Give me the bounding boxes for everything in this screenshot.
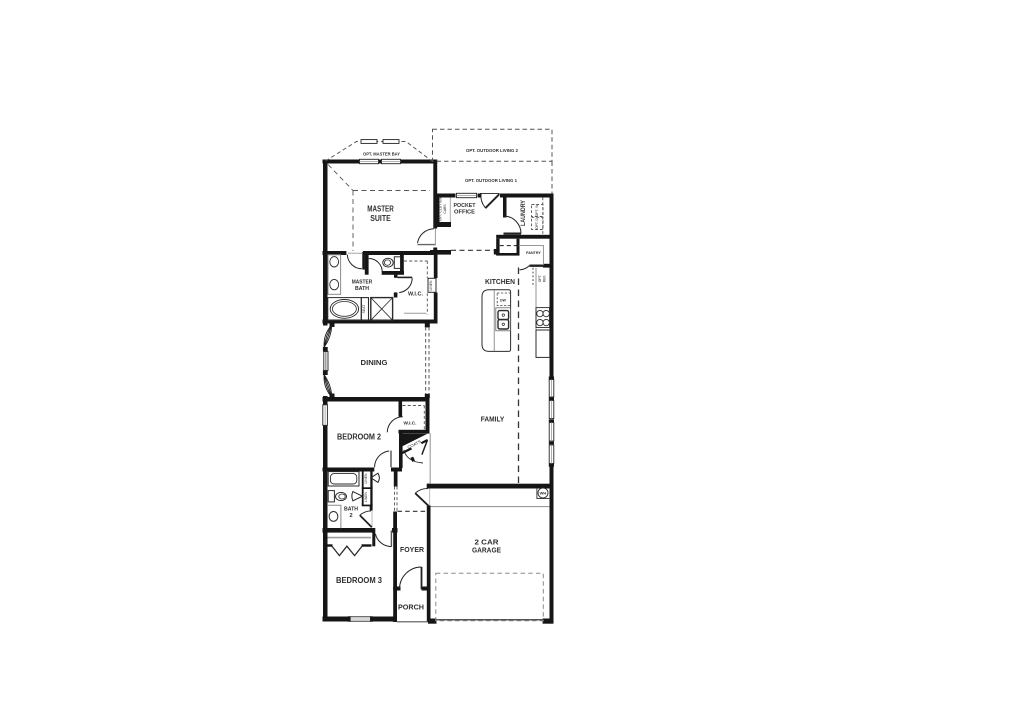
svg-text:OFFICE: OFFICE — [454, 210, 475, 216]
svg-text:LINEN: LINEN — [364, 491, 368, 502]
svg-text:W.I.C.: W.I.C. — [408, 292, 423, 298]
svg-text:MASTER: MASTER — [352, 280, 373, 286]
svg-text:OPT. MASTER BAY: OPT. MASTER BAY — [363, 152, 400, 157]
svg-text:MASTER: MASTER — [367, 205, 394, 214]
svg-text:FAMILY: FAMILY — [481, 415, 505, 424]
svg-text:GARAGE: GARAGE — [472, 546, 501, 555]
svg-text:KITCHEN: KITCHEN — [485, 277, 515, 286]
svg-text:BATH: BATH — [344, 507, 358, 513]
svg-text:LINEN: LINEN — [364, 473, 368, 484]
svg-text:FOYER: FOYER — [400, 545, 425, 554]
svg-text:LINEN: LINEN — [429, 280, 433, 291]
svg-text:OPT. W: OPT. W — [535, 204, 539, 216]
svg-text:DINING: DINING — [361, 358, 388, 367]
svg-text:BEDROOM 3: BEDROOM 3 — [336, 576, 383, 585]
svg-text:OPT. OUTDOOR LIVING 2: OPT. OUTDOOR LIVING 2 — [466, 148, 519, 153]
svg-text:POCKET: POCKET — [454, 203, 477, 209]
svg-text:OPT. D: OPT. D — [535, 217, 539, 228]
svg-text:BEDROOM 2: BEDROOM 2 — [337, 433, 381, 442]
svg-text:REF.: REF. — [543, 275, 547, 282]
svg-text:OPT. CLUTTER: OPT. CLUTTER — [439, 196, 443, 221]
svg-text:PANTRY: PANTRY — [526, 251, 541, 255]
svg-text:PORCH: PORCH — [398, 603, 424, 612]
svg-text:SUITE: SUITE — [370, 214, 391, 223]
svg-text:2: 2 — [349, 513, 352, 519]
svg-text:LAUNDRY: LAUNDRY — [520, 199, 527, 226]
svg-text:OPT.: OPT. — [538, 275, 542, 283]
svg-text:BATH: BATH — [355, 286, 369, 292]
svg-text:OPT. OUTDOOR LIVING 1: OPT. OUTDOOR LIVING 1 — [465, 178, 518, 183]
svg-text:SEAT: SEAT — [362, 305, 366, 314]
svg-text:CABS: CABS — [443, 204, 447, 214]
svg-text:WH: WH — [540, 490, 547, 495]
svg-text:DW: DW — [500, 299, 506, 303]
svg-text:W.I.C.: W.I.C. — [404, 421, 417, 427]
